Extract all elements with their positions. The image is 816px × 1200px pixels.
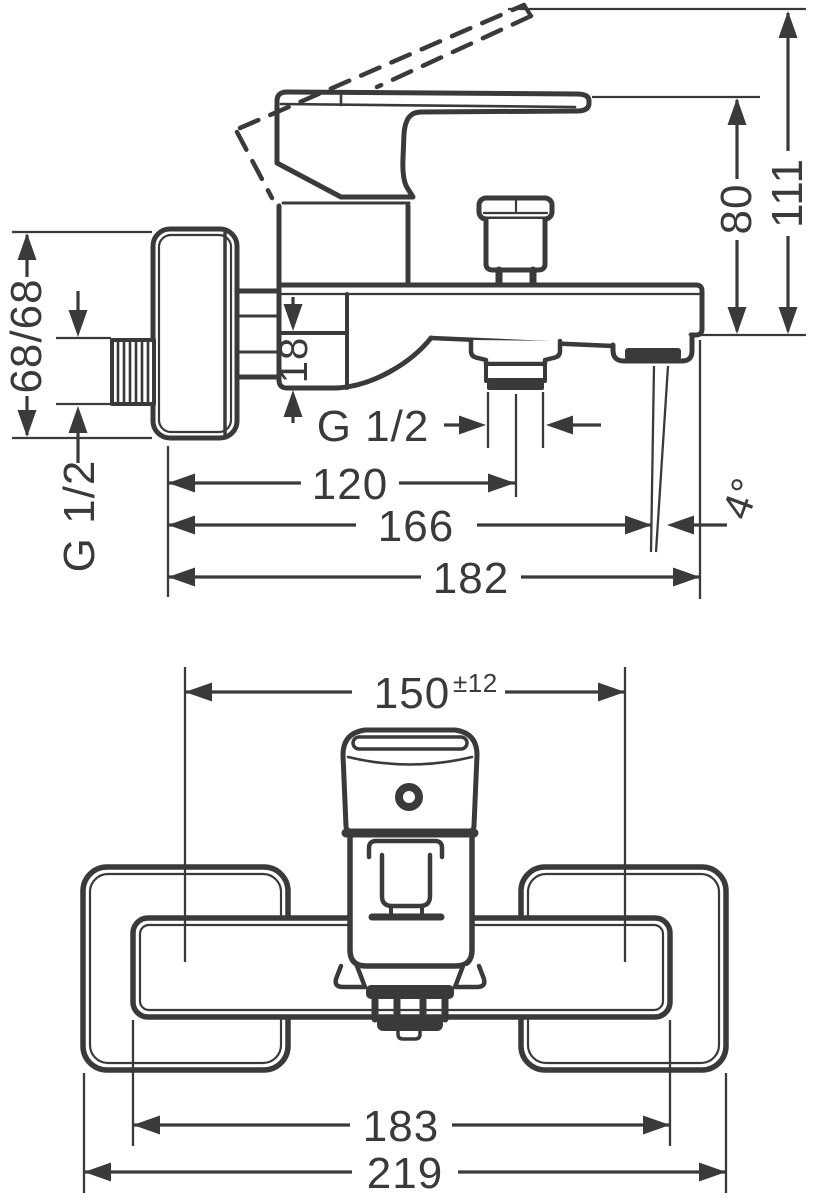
technical-drawing-page: 111 80 68/68 G 1/2 18 G 1/2 120 166 182 … [0,0,816,1200]
dim-connection-distance: 150 [374,669,450,718]
aerator-cap [377,1017,443,1031]
dim-body-drop: 18 [272,337,316,384]
aerator-collar [366,985,454,999]
diverter-knob [479,198,552,284]
dim-spout-angle: 4° [714,472,769,525]
spout-outlet-side [613,335,692,361]
dim-depth-hose: 120 [312,460,388,509]
dim-depth-total: 182 [433,554,509,603]
dim-body-width: 183 [363,1102,439,1151]
dim-depth-spout: 166 [378,502,454,551]
dim-overall-width: 219 [367,1149,443,1198]
wall-escutcheon-side [153,229,237,438]
mixer-handle-front [343,730,477,966]
dim-total-height: 111 [763,158,812,228]
dim-hose-thread: G 1/2 [317,402,430,451]
dim-connection-tolerance: ±12 [453,668,498,698]
dim-wall-thread: G 1/2 [55,460,104,573]
handle-indicator-dot [399,787,419,807]
side-view [112,5,702,438]
front-view [83,730,726,1070]
dim-handle-height: 80 [712,184,761,235]
bath-mixer-dimension-drawing: 111 80 68/68 G 1/2 18 G 1/2 120 166 182 … [0,0,816,1200]
shower-hose-port-side [471,340,560,390]
wall-thread-connector [112,340,154,404]
dim-escutcheon-size: 68/68 [2,278,51,393]
